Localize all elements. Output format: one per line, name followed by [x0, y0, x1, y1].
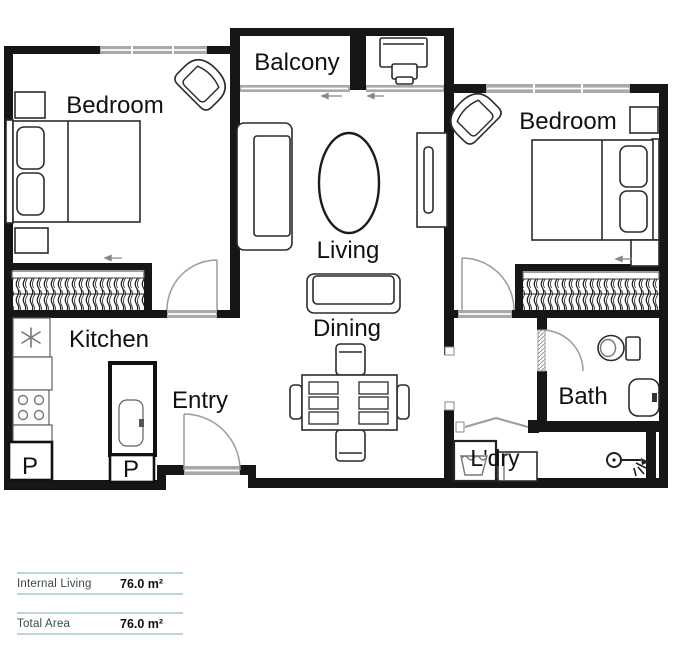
cooktop-icon: [13, 390, 49, 425]
counter: [13, 357, 52, 390]
chair-icon: [336, 344, 365, 375]
chair-icon: [336, 430, 365, 461]
room-label-bath: Bath: [558, 383, 607, 410]
door-entry: [184, 414, 240, 470]
sofa-icon: [237, 123, 292, 250]
room-label-bedroom-left: Bedroom: [66, 92, 163, 119]
side-table-icon: [15, 228, 48, 253]
room-label-balcony: Balcony: [254, 49, 339, 76]
door-bath: [538, 330, 583, 371]
room-label-kitchen: Kitchen: [69, 326, 149, 353]
area-row-value: 76.0 m²: [120, 617, 163, 631]
area-row-total-area: Total Area 76.0 m²: [17, 612, 183, 635]
side-table-icon: [630, 107, 658, 133]
bedroom-left-furniture: [6, 52, 233, 310]
fridge-icon: [13, 318, 50, 357]
vanity-sink-icon: [629, 379, 659, 416]
counter: [13, 425, 52, 442]
tv-unit-icon: [417, 133, 447, 227]
area-summary-table: Internal Living 76.0 m² Total Area 76.0 …: [17, 572, 183, 635]
window-bedroom-right: [486, 84, 630, 93]
dining-furniture: [290, 344, 409, 461]
armchair-icon: [172, 52, 233, 113]
balcony-furniture: [380, 38, 427, 84]
area-row-label: Total Area: [17, 618, 120, 630]
label-pantry-island: P: [123, 456, 139, 483]
chair-icon: [397, 385, 409, 419]
area-row-label: Internal Living: [17, 578, 120, 590]
bed-icon: [532, 139, 659, 240]
room-label-bedroom-right: Bedroom: [519, 108, 616, 135]
room-label-entry: Entry: [172, 387, 228, 414]
label-pantry-left: P: [22, 453, 38, 480]
chair-icon: [290, 385, 302, 419]
room-label-living: Living: [317, 237, 380, 264]
room-label-dining: Dining: [313, 315, 381, 342]
area-row-internal-living: Internal Living 76.0 m²: [17, 572, 183, 595]
balcony-sliding-door: [240, 85, 350, 99]
side-table-icon: [631, 240, 659, 266]
room-label-laundry: L'dry: [470, 445, 520, 471]
toilet-icon: [598, 336, 640, 361]
door-bedroom-right: [462, 258, 514, 310]
bed-icon: [6, 120, 140, 223]
loveseat-icon: [307, 274, 400, 313]
floor-plan: Bedroom Balcony Bedroom Living Dining Ki…: [0, 0, 683, 500]
shower-head-icon: [607, 453, 649, 476]
window-bedroom-left: [100, 46, 207, 54]
living-furniture: [237, 123, 447, 313]
door-bedroom-left: [167, 260, 217, 310]
outdoor-table-icon: [380, 38, 427, 67]
area-row-value: 76.0 m²: [120, 577, 163, 591]
side-table-icon: [15, 92, 45, 118]
balcony-sliding-door-2: [366, 85, 444, 99]
rug-icon: [319, 133, 379, 233]
floor-plan-page: Bedroom Balcony Bedroom Living Dining Ki…: [0, 0, 683, 650]
door-laundry-bifold: [465, 418, 528, 427]
